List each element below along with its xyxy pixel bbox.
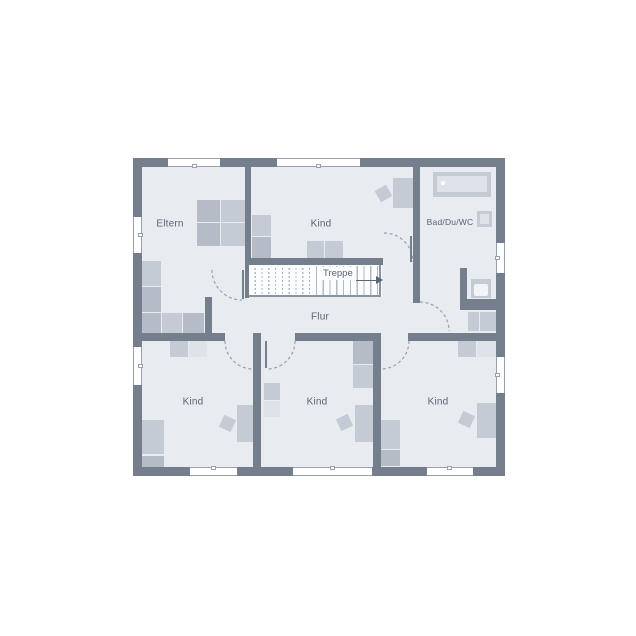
door-arc-kind-bl bbox=[225, 341, 253, 369]
door-arc-kind-top bbox=[384, 233, 413, 262]
room-label-kind-top: Kind bbox=[311, 219, 332, 230]
room-label-kind-bottom-middle: Kind bbox=[307, 397, 328, 408]
door-arc-kind-br bbox=[381, 341, 409, 369]
room-label-bad: Bad/Du/WC bbox=[427, 217, 474, 227]
door-arc-bad bbox=[420, 302, 449, 331]
room-label-kind-bottom-right: Kind bbox=[428, 397, 449, 408]
room-label-treppe: Treppe bbox=[320, 267, 356, 280]
floor-plan-canvas: Eltern Kind Bad/Du/WC Treppe Flur Kind K… bbox=[0, 0, 636, 636]
room-label-flur: Flur bbox=[311, 312, 329, 323]
room-label-kind-bottom-left: Kind bbox=[183, 397, 204, 408]
room-label-eltern: Eltern bbox=[156, 219, 183, 230]
floor-plan-screenshot: { "floor_plan": { "labels": { "eltern": … bbox=[0, 0, 636, 636]
door-arc-eltern bbox=[212, 270, 242, 300]
door-arc-kind-bm bbox=[267, 341, 295, 369]
